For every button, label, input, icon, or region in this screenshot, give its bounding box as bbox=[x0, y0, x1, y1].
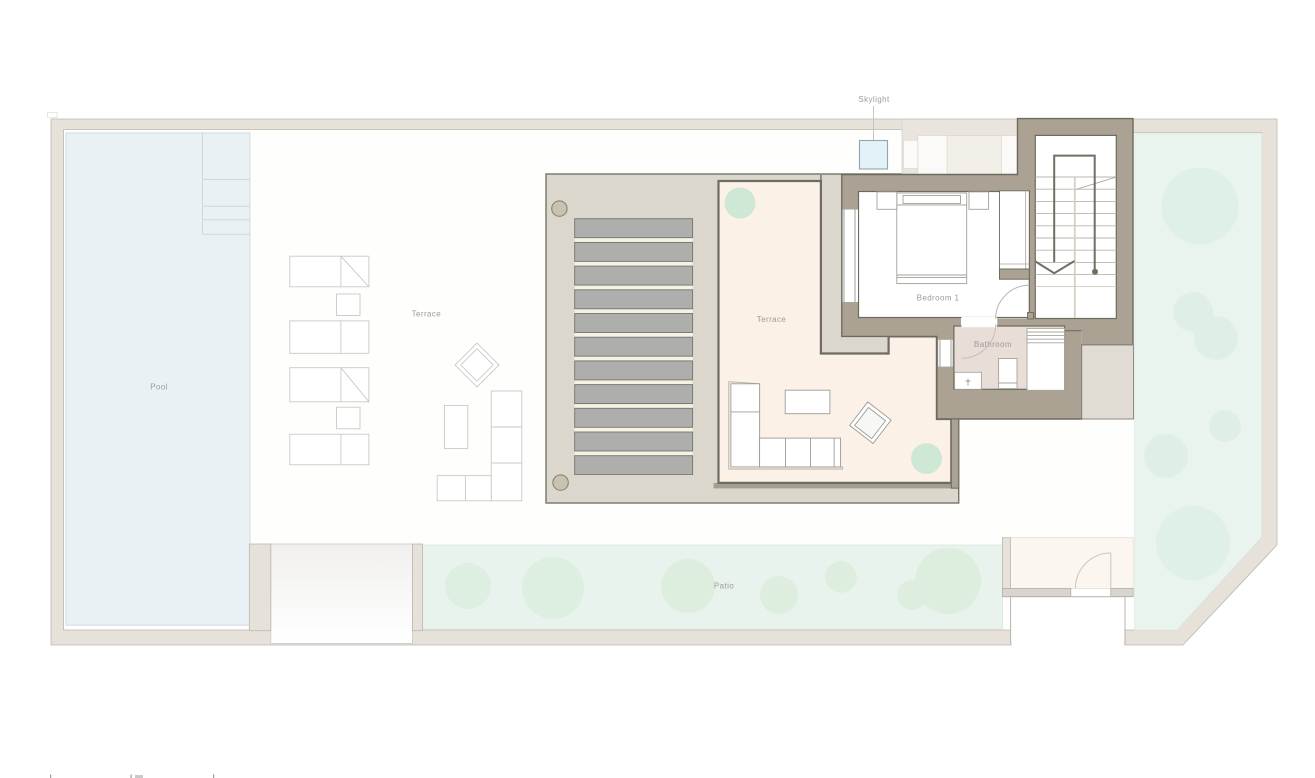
svg-text:Pool: Pool bbox=[150, 383, 168, 392]
svg-text:Bedroom 1: Bedroom 1 bbox=[917, 294, 960, 303]
svg-text:Terrace: Terrace bbox=[412, 310, 442, 319]
svg-text:Terrace: Terrace bbox=[757, 315, 787, 324]
svg-text:Skylight: Skylight bbox=[858, 95, 890, 104]
svg-text:Bathroom: Bathroom bbox=[974, 340, 1012, 349]
svg-text:Patio: Patio bbox=[714, 582, 734, 591]
